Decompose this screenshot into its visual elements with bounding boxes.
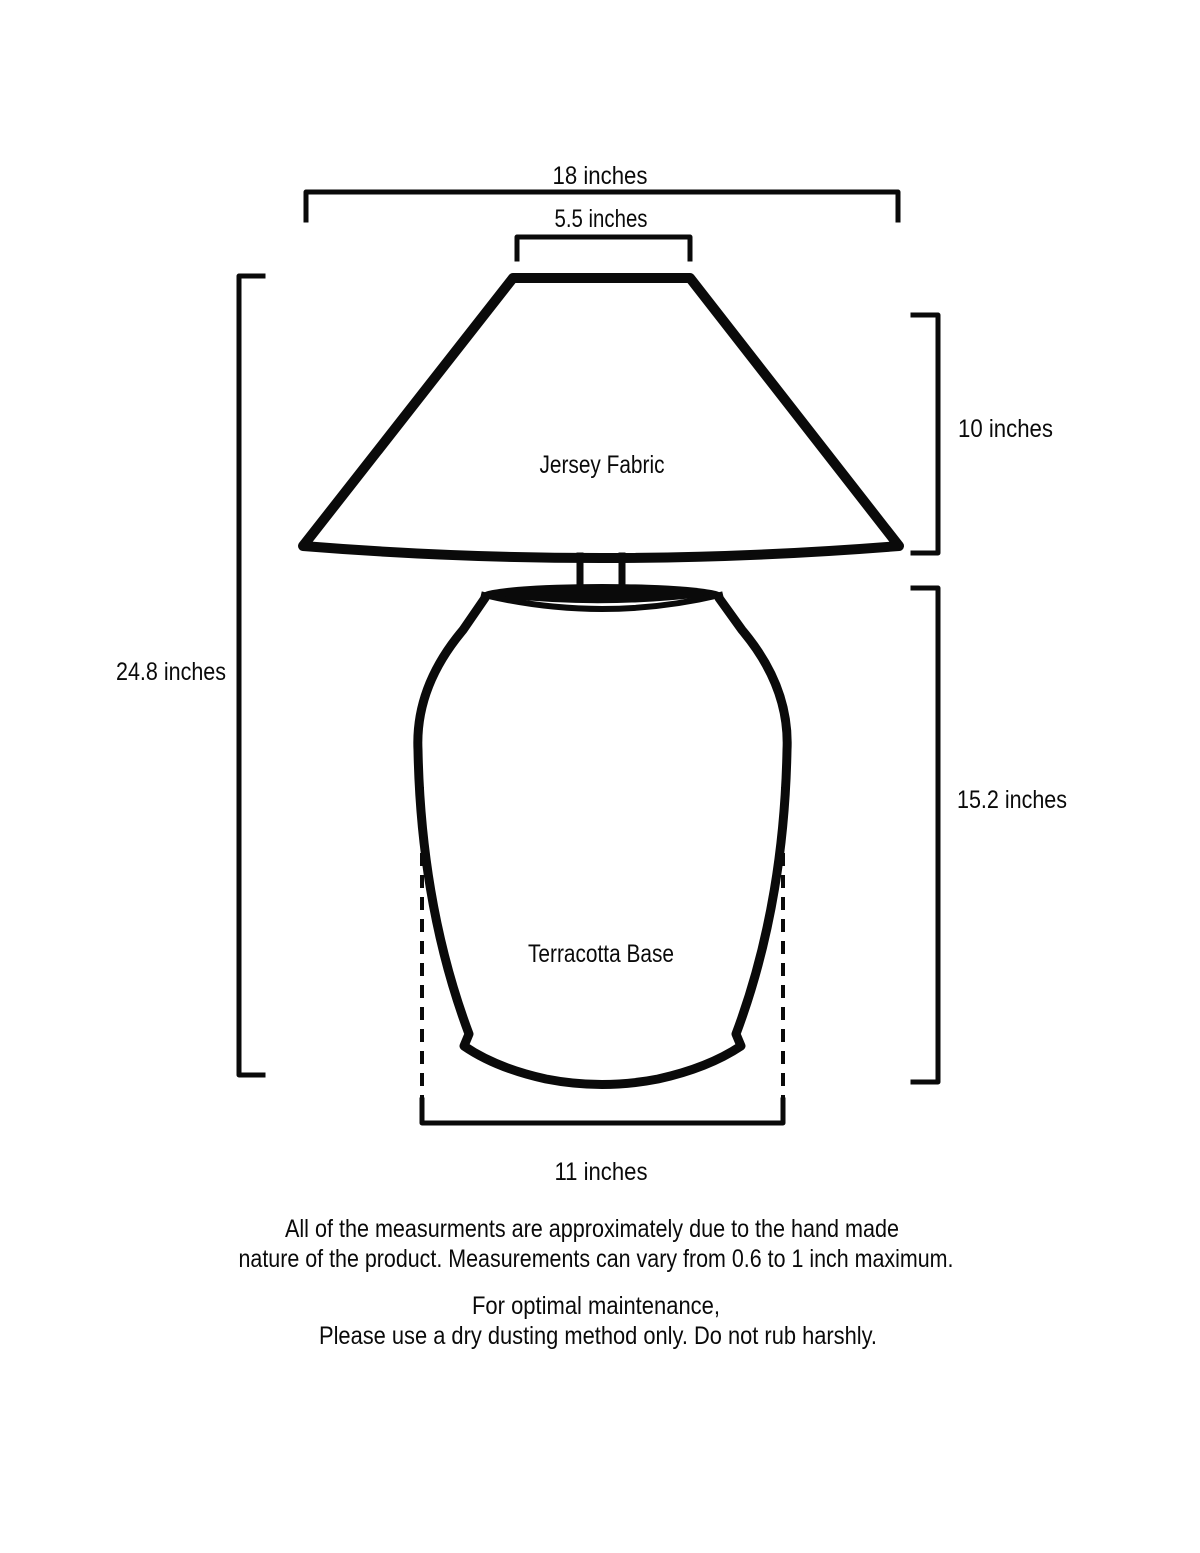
bracket-shade-height [913, 315, 938, 553]
base-material-label: Terracotta Base [528, 940, 674, 968]
bracket-base-width [422, 1100, 783, 1123]
bracket-base-height [913, 588, 938, 1082]
shade-height-label: 10 inches [958, 415, 1053, 443]
base-height-label: 15.2 inches [957, 786, 1067, 814]
shade-material-label: Jersey Fabric [540, 451, 665, 479]
bracket-total-height [239, 276, 263, 1075]
tolerance-note-line1: All of the measurments are approximately… [285, 1215, 899, 1243]
bracket-shade-top-width [517, 237, 690, 259]
shade-bottom-width-label: 18 inches [553, 162, 648, 190]
shade-top-width-label: 5.5 inches [555, 205, 648, 233]
tolerance-note-line2: nature of the product. Measurements can … [239, 1245, 954, 1273]
total-height-label: 24.8 inches [116, 658, 226, 686]
care-note-line1: For optimal maintenance, [472, 1292, 720, 1320]
diagram-svg: 18 inches 5.5 inches Jersey Fabric Terra… [0, 0, 1200, 1553]
lamp-base-outline [418, 598, 787, 1085]
care-note-line2: Please use a dry dusting method only. Do… [319, 1322, 877, 1350]
base-width-label: 11 inches [555, 1158, 648, 1186]
lamp-dimension-diagram: 18 inches 5.5 inches Jersey Fabric Terra… [0, 0, 1200, 1553]
lamp-shade-outline [303, 278, 899, 558]
